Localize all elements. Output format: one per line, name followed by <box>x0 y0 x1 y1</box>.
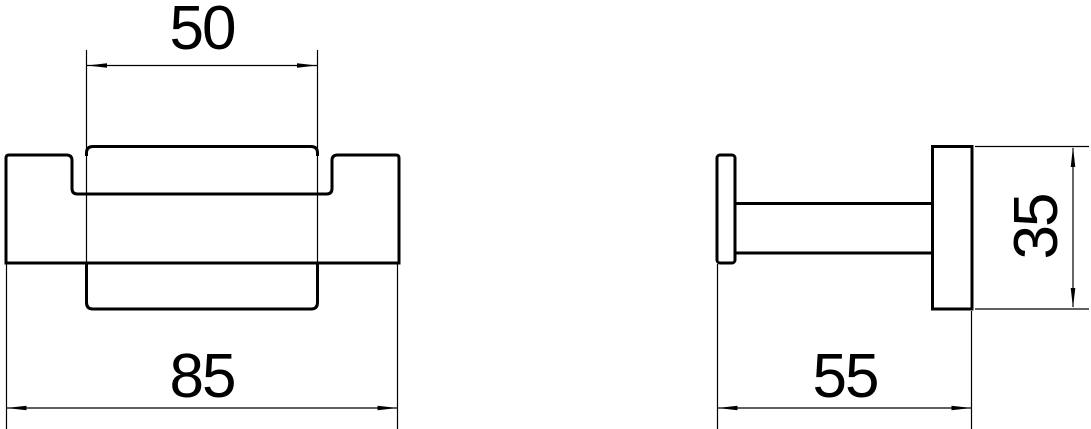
dimension-50: 50 <box>87 0 317 68</box>
arrowhead-35-bottom <box>1071 288 1076 308</box>
front-bar-outline <box>6 155 399 263</box>
dimension-text-35: 35 <box>1002 195 1071 260</box>
wall-plate-bottom-outline <box>87 262 318 309</box>
dimension-text-55: 55 <box>813 342 878 411</box>
side-view: 55 35 <box>717 147 1089 429</box>
dimension-85: 85 <box>7 264 398 429</box>
dimension-35: 35 <box>975 147 1089 310</box>
wall-plate-top-outline <box>87 147 318 157</box>
technical-drawing-canvas: 50 85 <box>0 0 1091 429</box>
drawing-svg: 50 85 <box>0 0 1091 429</box>
arrowhead-85-left <box>7 406 27 411</box>
wall-plate-side-outline <box>933 147 973 310</box>
arrowhead-35-top <box>1071 147 1076 167</box>
arrowhead-50-right <box>297 63 317 68</box>
front-plate-side-outline <box>717 155 735 263</box>
dimension-text-50: 50 <box>170 0 235 63</box>
dimension-text-85: 85 <box>170 342 235 411</box>
front-view: 50 85 <box>6 0 399 429</box>
arrowhead-55-right <box>952 406 972 411</box>
arrowhead-85-right <box>378 406 398 411</box>
arrowhead-50-left <box>87 63 107 68</box>
arrowhead-55-left <box>718 406 738 411</box>
